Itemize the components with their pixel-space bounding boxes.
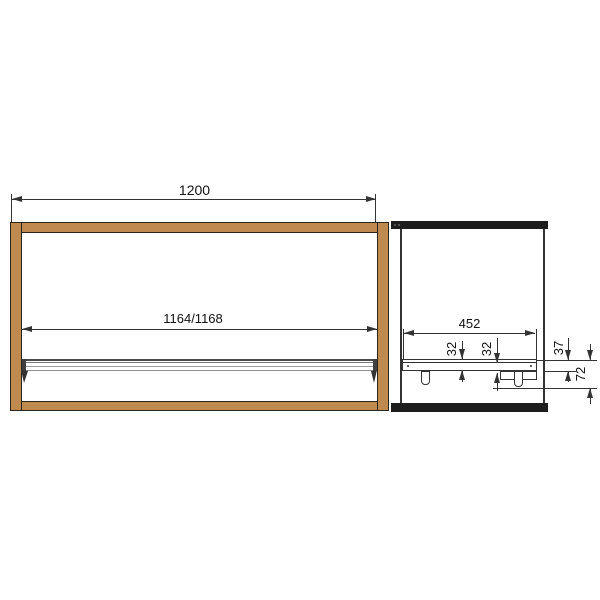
rail-highlight-line-2 [23, 366, 376, 367]
mounting-hook-left [421, 371, 430, 385]
frame-bottom-board [10, 401, 389, 411]
mounting-hook-right [514, 371, 523, 387]
dim-1200-witness-left [11, 194, 12, 222]
rail-profile-screw-left [407, 365, 409, 367]
dim-452-witness-left [403, 329, 404, 360]
side-left-edge [400, 229, 402, 403]
extension-line-rail-bottom [544, 371, 576, 372]
extension-line-rail-top [537, 360, 597, 361]
dim-72-arrow-bottom [587, 388, 593, 398]
dim-1164-arrow-right [367, 326, 377, 332]
dim-1200-line [12, 199, 376, 200]
dim-32b-arrow-bottom [494, 373, 500, 383]
dim-32a-arrow-bottom [459, 370, 465, 380]
panel-screw-dot-1 [394, 224, 396, 226]
dim-32b-label: 32 [480, 336, 494, 362]
rail-bracket-left-icon [21, 370, 29, 384]
dim-37-label: 37 [552, 335, 566, 361]
dim-1200-witness-right [375, 194, 376, 222]
extension-line-hook-bottom [493, 388, 597, 389]
dim-72-label: 72 [574, 361, 588, 387]
panel-screw-dot-2 [398, 224, 400, 226]
frame-top-board [10, 222, 389, 233]
rail-profile-inner-line [403, 362, 536, 363]
rail-profile-screw-right [530, 365, 532, 367]
dim-1164-arrow-left [22, 326, 32, 332]
dim-37-arrow-bottom [565, 371, 571, 381]
dim-452-arrow-right [525, 330, 535, 336]
dim-32a-arrow-top [459, 349, 465, 359]
side-top-panel [391, 221, 548, 229]
dim-1164-label: 1164/1168 [0, 312, 386, 326]
side-bottom-panel [391, 403, 548, 412]
dim-32a-label: 32 [445, 336, 459, 362]
dim-452-line [404, 333, 535, 334]
rail-bracket-right-icon [370, 370, 378, 384]
dim-452-witness-right [536, 329, 537, 371]
dim-452-label: 452 [404, 317, 535, 331]
dim-37-arrow-top [565, 350, 571, 360]
dim-1200-label: 1200 [0, 183, 389, 197]
rail-highlight-line-1 [23, 362, 376, 363]
dim-72-arrow-top [587, 350, 593, 360]
dim-452-arrow-left [404, 330, 414, 336]
side-right-edge [543, 229, 545, 403]
technical-drawing-canvas: 1200 1164/1168 [0, 0, 600, 600]
rail-profile-plate [402, 359, 537, 371]
dim-1200-arrow-left [12, 196, 22, 202]
dim-32b-arrow-top [494, 353, 500, 363]
dim-1164-line [22, 329, 377, 330]
hanging-rail [22, 359, 377, 371]
